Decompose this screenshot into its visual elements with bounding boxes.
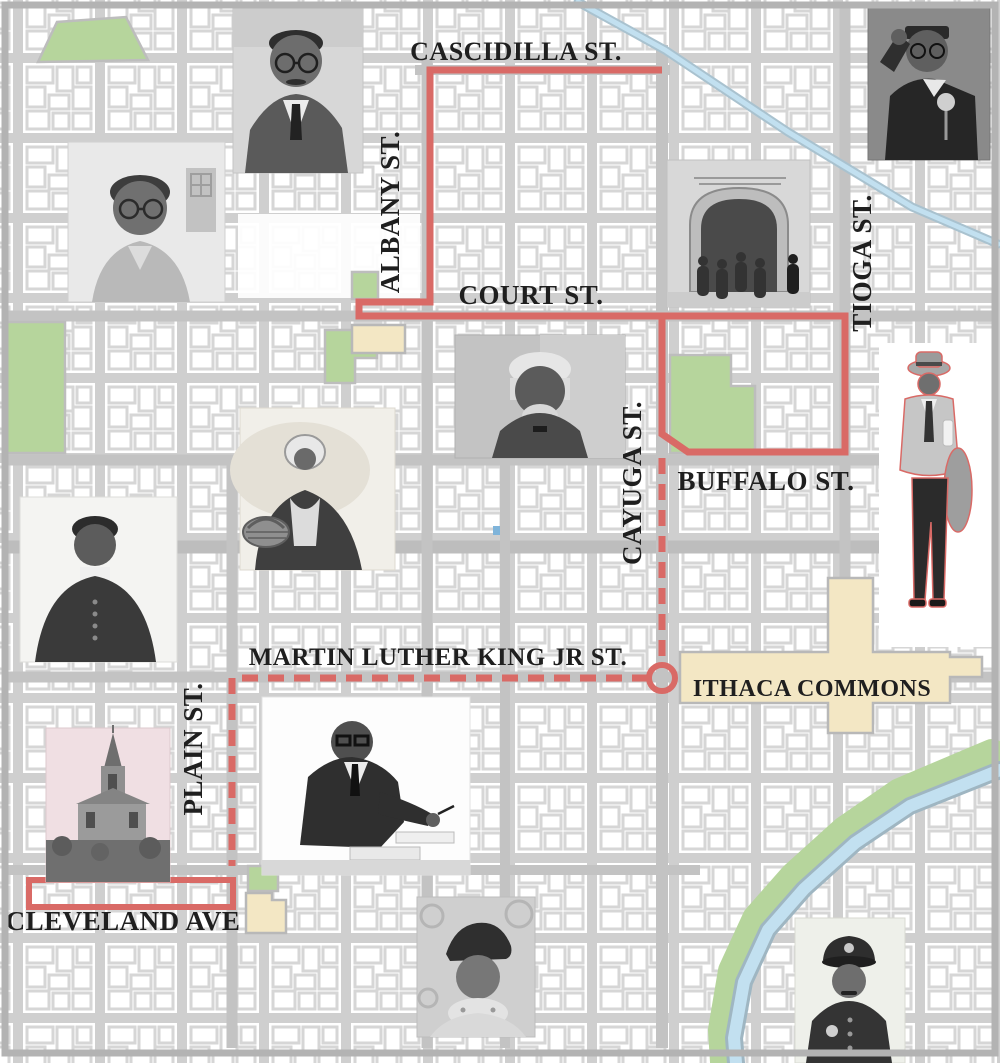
photo-frederick-douglass (455, 335, 625, 458)
street-label-cascidilla: CASCIDILLA ST. (410, 37, 622, 66)
area-label-ithaca-commons: ITHACA COMMONS (693, 676, 931, 702)
photo-woman-in-beret (417, 897, 535, 1037)
street-label-cayuga: CAYUGA ST. (617, 401, 647, 565)
street-label-buffalo: BUFFALO ST. (677, 466, 854, 496)
street-label-tioga: TIOGA ST. (847, 194, 877, 332)
street-label-plain: PLAIN ST. (178, 682, 208, 815)
photo-woman-with-glasses (68, 142, 225, 302)
photo-man-writing-at-desk (262, 697, 470, 875)
photo-seated-woman-with-basket (230, 408, 395, 570)
street-label-court: COURT ST. (458, 280, 603, 310)
photo-group-exiting-building (667, 160, 810, 307)
photo-malcolm-x (868, 5, 990, 160)
photo-harriet-tubman (20, 497, 177, 662)
street-label-cleveland: CLEVELAND AVE (6, 906, 241, 936)
heritage-walking-tour-map: CASCIDILLA ST. ALBANY ST. COURT ST. TIOG… (0, 0, 1000, 1063)
photo-walking-man (879, 343, 997, 647)
street-label-mlk: MARTIN LUTHER KING JR ST. (249, 644, 628, 671)
blue-marker (493, 526, 500, 535)
photo-alex-haley (233, 7, 363, 173)
photo-police-officer (795, 918, 905, 1063)
street-label-albany: ALBANY ST. (375, 131, 405, 294)
photo-church (46, 725, 170, 882)
